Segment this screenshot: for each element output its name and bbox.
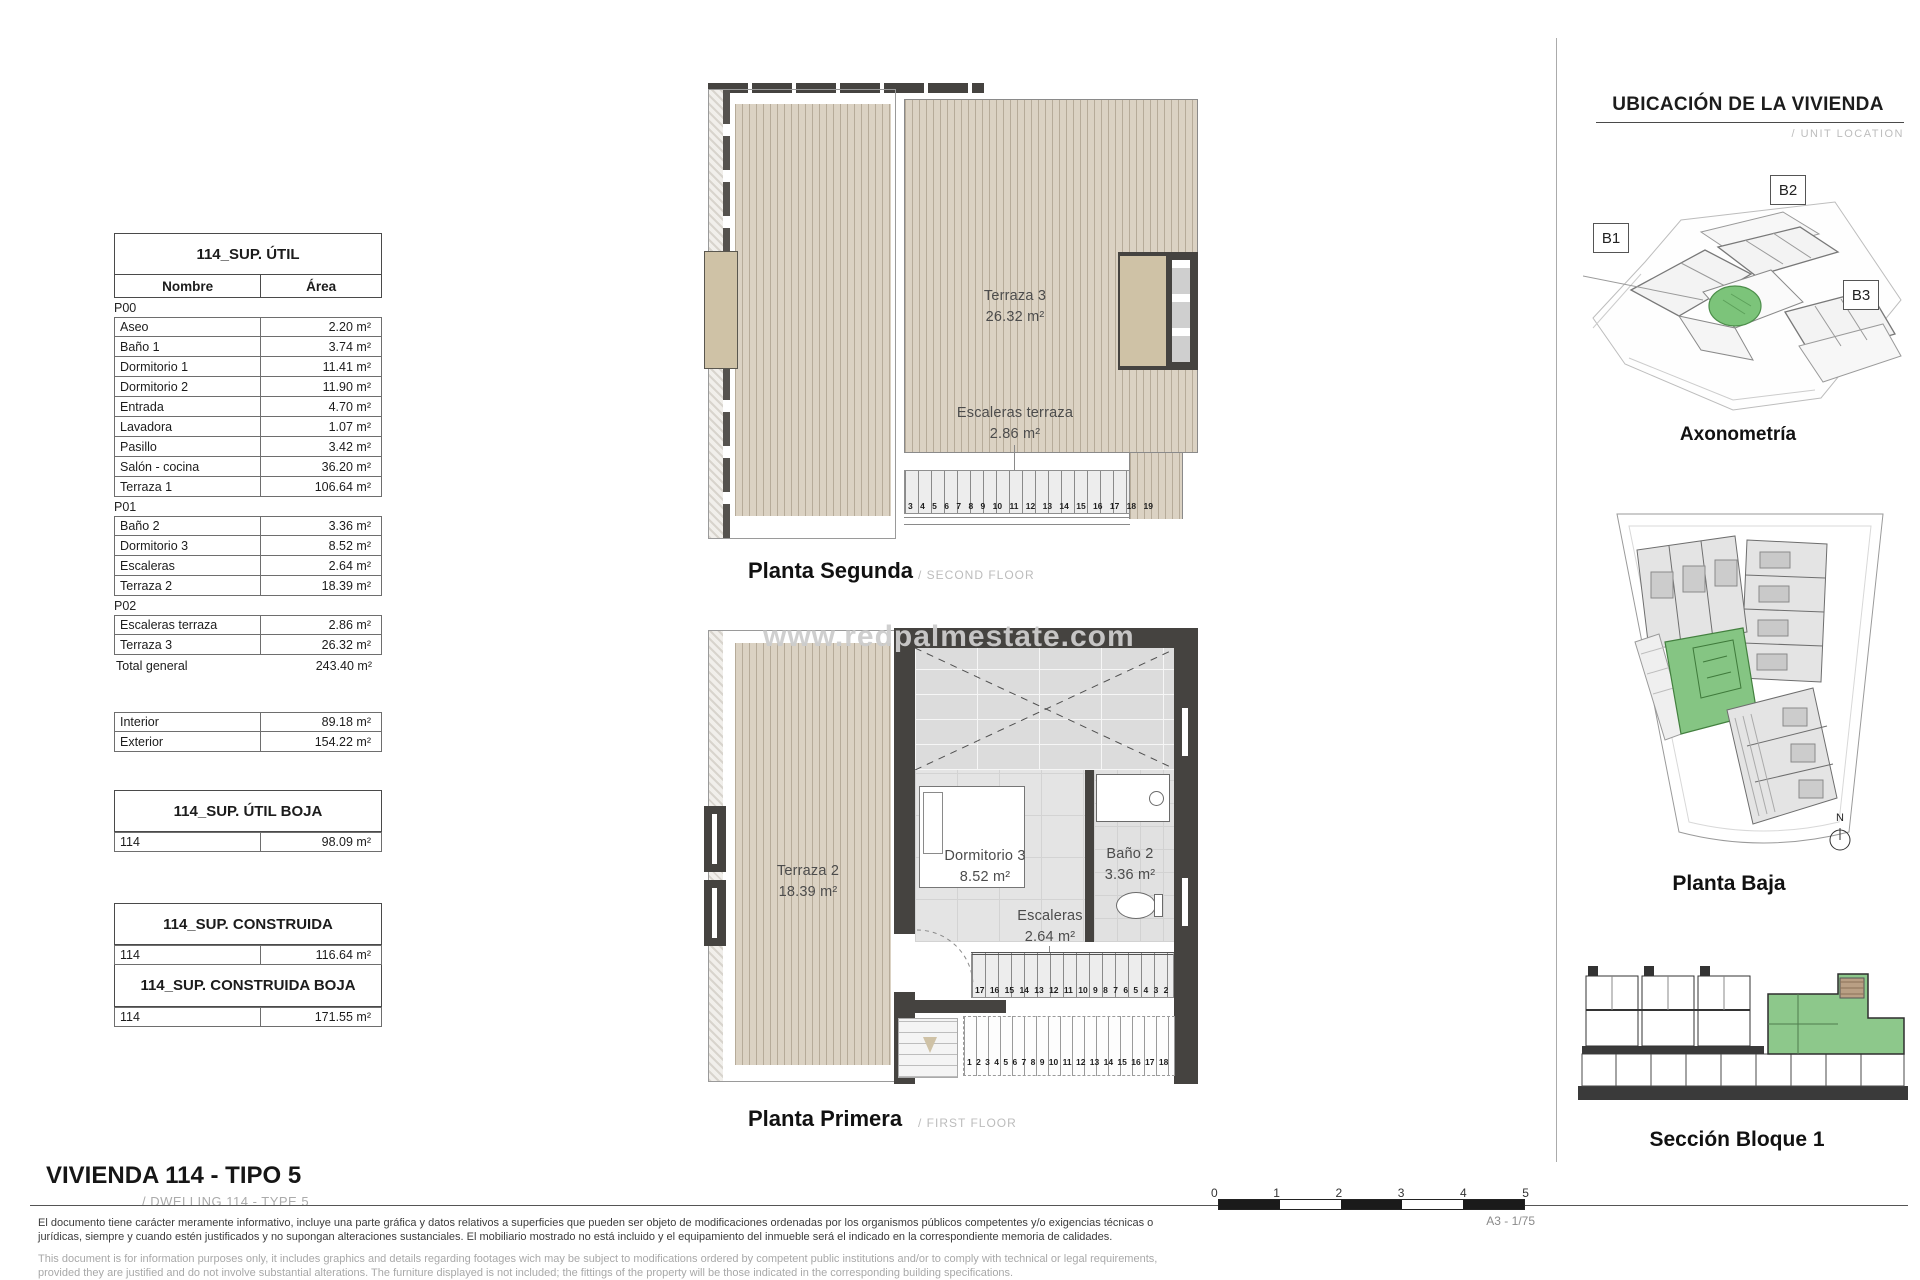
scale-segment [1463, 1200, 1524, 1209]
window-frame [704, 806, 726, 872]
disclaimer-english: This document is for information purpose… [38, 1252, 1198, 1280]
room-label-terraza2: Terraza 2 18.39 m² [738, 861, 878, 903]
bathroom-sink [1096, 774, 1170, 822]
scale-tick: 5 [1522, 1186, 1529, 1200]
table-total-row: Total general 243.40 m² [114, 655, 382, 677]
plan-sheet: 114_SUP. ÚTIL Nombre Área P00 Aseo2.20 m… [0, 0, 1920, 1280]
table-title: 114_SUP. ÚTIL [114, 233, 382, 275]
table-row: Terraza 1106.64 m² [114, 477, 382, 497]
table-title: 114_SUP. CONSTRUIDA [114, 903, 382, 945]
scale-tick: 0 [1211, 1186, 1218, 1200]
deck-terraza [735, 104, 891, 516]
table-row: Interior89.18 m² [114, 712, 382, 732]
door-swing-arc [915, 928, 975, 988]
stair-bulkhead-panel [704, 251, 738, 369]
table-row: Terraza 326.32 m² [114, 635, 382, 655]
window-frame [704, 880, 726, 946]
room-label-escaleras-terraza: Escaleras terraza 2.86 m² [935, 403, 1095, 445]
sidebar-subtitle: / UNIT LOCATION [1696, 128, 1904, 140]
block-label-b3: B3 [1843, 280, 1879, 310]
stair-tread-numbers: 17 16 15 14 13 12 11 10 9 8 7 6 5 4 3 2 [975, 985, 1171, 995]
sheet-subtitle: / DWELLING 114 - TYPE 5 [142, 1194, 309, 1209]
void-cross-marks [915, 648, 1177, 770]
plan-caption-segunda-en: / SECOND FLOOR [918, 568, 1035, 582]
table-row: 114116.64 m² [114, 945, 382, 965]
scale-tick: 4 [1460, 1186, 1467, 1200]
window-glass [1182, 708, 1188, 756]
stairs-lower-left [898, 1018, 958, 1078]
room-label-dormitorio3: Dormitorio 3 8.52 m² [915, 846, 1055, 888]
table-row: Baño 13.74 m² [114, 337, 382, 357]
north-arrow-label: N [1832, 812, 1848, 824]
axonometria-caption: Axonometría [1638, 424, 1838, 446]
table-column-headers: Nombre Área [114, 275, 382, 298]
toilet-icon [1116, 892, 1156, 919]
scale-segment [1341, 1200, 1402, 1209]
stair-bulkhead [1118, 252, 1198, 370]
toilet-tank [1154, 894, 1163, 917]
sidebar-title-rule [1596, 122, 1904, 123]
table-row: Salón - cocina36.20 m² [114, 457, 382, 477]
block-label-b2: B2 [1770, 175, 1806, 205]
bed-pillow [923, 792, 943, 854]
plan-caption-segunda: Planta Segunda [748, 558, 913, 584]
table-sup-construida: 114_SUP. CONSTRUIDA 114116.64 m² 114_SUP… [114, 903, 382, 1027]
disclaimer-spanish: El documento tiene carácter meramente in… [38, 1216, 1198, 1244]
table-row: Lavadora1.07 m² [114, 417, 382, 437]
table-row: Dormitorio 38.52 m² [114, 536, 382, 556]
table-row: Exterior154.22 m² [114, 732, 382, 752]
group-label-p00: P00 [114, 298, 382, 317]
seccion-drawing [1576, 958, 1911, 1108]
scale-bar-ticks: 0 1 2 3 4 5 [1211, 1186, 1529, 1200]
stair-tread-numbers: 1 2 3 4 5 6 7 8 9 10 11 12 13 14 15 16 1… [967, 1057, 1172, 1067]
door-opening [894, 934, 915, 992]
bulkhead-panel [1120, 256, 1166, 366]
plan-wall [894, 1000, 1006, 1013]
room-label-escaleras: Escaleras 2.64 m² [980, 906, 1120, 948]
stairs-upper: 17 16 15 14 13 12 11 10 9 8 7 6 5 4 3 2 [971, 952, 1174, 998]
scale-tick: 1 [1273, 1186, 1280, 1200]
column-area: Área [261, 275, 381, 297]
block-label-b1: B1 [1593, 223, 1629, 253]
stairs-terraza: 3 4 5 6 7 8 9 10 11 12 13 14 15 16 17 18… [904, 470, 1130, 514]
scale-bar [1218, 1199, 1525, 1210]
faucet-icon [1149, 791, 1164, 806]
terrace-outline [708, 630, 896, 1082]
table-row: 114171.55 m² [114, 1007, 382, 1027]
window-glass [712, 888, 717, 938]
table-row: Baño 23.36 m² [114, 516, 382, 536]
footer-rule [30, 1205, 1908, 1206]
stair-direction-arrow [923, 1037, 937, 1053]
room-label-terraza3: Terraza 3 26.32 m² [935, 286, 1095, 328]
table-title: 114_SUP. ÚTIL BOJA [114, 790, 382, 832]
table-title: 114_SUP. CONSTRUIDA BOJA [114, 965, 382, 1007]
scale-tick: 3 [1398, 1186, 1405, 1200]
column-nombre: Nombre [115, 275, 261, 297]
plan-wall [1174, 648, 1198, 1084]
window-glass [712, 814, 717, 864]
stair-tread-numbers: 3 4 5 6 7 8 9 10 11 12 13 14 15 16 17 18… [908, 501, 1127, 511]
window-glass [1182, 878, 1188, 926]
table-row: Dormitorio 111.41 m² [114, 357, 382, 377]
plan-caption-primera: Planta Primera [748, 1106, 902, 1132]
table-sup-util-boja: 114_SUP. ÚTIL BOJA 11498.09 m² [114, 790, 382, 852]
planta-baja-caption: Planta Baja [1629, 872, 1829, 896]
scale-segment [1219, 1200, 1280, 1209]
scale-segment [1280, 1200, 1341, 1209]
table-sup-util: 114_SUP. ÚTIL Nombre Área P00 Aseo2.20 m… [114, 233, 382, 677]
planta-baja-drawing [1595, 502, 1905, 862]
table-row: Dormitorio 211.90 m² [114, 377, 382, 397]
sidebar-title: UBICACIÓN DE LA VIVIENDA [1586, 94, 1910, 116]
stair-edge-lines [904, 517, 1130, 525]
table-row: Terraza 218.39 m² [114, 576, 382, 596]
floor-plan-primera: www.redpalmestate.com Terraza 2 18.39 m² [708, 628, 1198, 1086]
table-row: Escaleras terraza2.86 m² [114, 615, 382, 635]
plan-caption-primera-en: / FIRST FLOOR [918, 1116, 1017, 1130]
table-row: Escaleras2.64 m² [114, 556, 382, 576]
table-row: 11498.09 m² [114, 832, 382, 852]
table-row: Entrada4.70 m² [114, 397, 382, 417]
scale-segment [1402, 1200, 1463, 1209]
bulkhead-louvers [1172, 260, 1190, 362]
sheet-title: VIVIENDA 114 - TIPO 5 [46, 1162, 301, 1190]
table-row: Aseo2.20 m² [114, 317, 382, 337]
table-row: Pasillo3.42 m² [114, 437, 382, 457]
stairs-lower: 1 2 3 4 5 6 7 8 9 10 11 12 13 14 15 16 1… [963, 1016, 1175, 1076]
floor-plan-segunda: Terraza 3 26.32 m² Escaleras terraza 2.8… [708, 83, 1198, 539]
group-label-p01: P01 [114, 497, 382, 516]
watermark: www.redpalmestate.com [763, 620, 1135, 654]
sheet-scale-label: A3 - 1/75 [1455, 1214, 1535, 1228]
scale-tick: 2 [1336, 1186, 1343, 1200]
seccion-caption: Sección Bloque 1 [1627, 1128, 1847, 1152]
table-interior-exterior: Interior89.18 m² Exterior154.22 m² [114, 712, 382, 752]
panel-divider [1556, 38, 1557, 1162]
deck-terraza2 [735, 643, 891, 1065]
room-label-bano2: Baño 2 3.36 m² [1086, 844, 1174, 886]
group-label-p02: P02 [114, 596, 382, 615]
